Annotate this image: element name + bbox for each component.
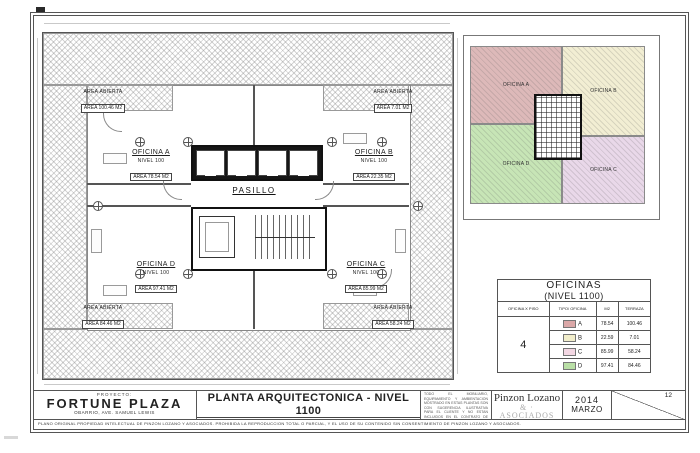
elevator-bank [191,145,323,181]
color-swatch-d [563,362,576,370]
terrace-band-left [43,85,87,329]
service-core [191,207,327,271]
floor-plan: PASILLO OFICINA A NIVEL 100 AREA 78.54 M… [36,18,460,388]
column-symbol [93,201,103,211]
office-b-label: OFICINA B NIVEL 100 AREA 22.35 M2 [343,149,405,184]
m2-cell: 85.99 [596,345,618,359]
service-elevator [199,216,235,258]
sheet-number-section: 12 [611,391,686,420]
elevator-car [227,150,256,176]
terrace-top-left-label: AREA ABIERTA AREA 100.46 M2 [53,89,153,115]
m2-cell: 22.59 [596,331,618,345]
date-month: MARZO [563,405,611,414]
office-type-cell: A [549,317,596,331]
table-row: 4 A 78.54 100.46 [498,317,651,331]
terrace-bottom-left-label: AREA ABIERTA AREA 84.46 M2 [53,305,153,331]
key-plan-zone-b-label: OFICINA B [590,88,617,94]
office-d-label: OFICINA D NIVEL 100 AREA 97.41 M2 [121,261,191,296]
notes-section: TODO EL MOBILIARIO, EQUIPAMIENTO Y AMBIE… [420,391,491,420]
office-type-cell: B [549,331,596,345]
key-plan-zone-d-label: OFICINA D [503,161,530,167]
terraza-cell: 7.01 [618,331,650,345]
office-c-label: OFICINA C NIVEL 100 AREA 85.99 M2 [331,261,401,296]
floor-number-cell: 4 [498,317,550,373]
column-symbol [413,201,423,211]
project-name: FORTUNE PLAZA [33,397,196,410]
key-plan: OFICINA A OFICINA B OFICINA D OFICINA C [463,35,660,220]
column-symbol [135,137,145,147]
terraza-cell: 84.46 [618,359,650,373]
terraza-cell: 100.46 [618,317,650,331]
terrace-top-right-label: AREA ABIERTA AREA 7.01 M2 [343,89,443,115]
firm-name-2: & · ASOCIADOS [492,404,562,420]
key-plan-zone-a-label: OFICINA A [503,82,529,88]
architect-firm-section: Pinzon Lozano & · ASOCIADOS ARQUITECTOS [491,391,562,420]
service-elevator-car [205,222,229,252]
date-section: 2014 MARZO [562,391,611,420]
areas-table: OFICINAS (NIVEL 1100) OFICINA X PISO TIP… [497,279,651,373]
terraza-cell: 58.24 [618,345,650,359]
color-swatch-a [563,320,576,328]
office-type-cell: C [549,345,596,359]
note-text: TODO EL MOBILIARIO, EQUIPAMIENTO Y AMBIE… [424,392,488,420]
corridor-label: PASILLO [218,186,290,195]
furniture [395,229,406,253]
key-plan-zone-c-label: OFICINA C [590,167,617,173]
wall-center-bottom [253,267,255,329]
header-tipo-oficina: TIPO/ OFICINA [549,302,596,317]
terrace-bottom-right-label: AREA ABIERTA AREA 58.24 M2 [343,305,443,331]
date-year: 2014 [563,395,611,405]
elevator-car [289,150,318,176]
elevator-car [258,150,287,176]
dimension-line-right [457,38,458,374]
furniture [91,229,102,253]
project-section: PROYECTO: FORTUNE PLAZA OBARRIO, AVE. SA… [33,391,196,420]
dimension-line-bottom [44,384,450,385]
building-outline: PASILLO OFICINA A NIVEL 100 AREA 78.54 M… [42,32,454,380]
key-plan-core [534,94,582,160]
office-a-label: OFICINA A NIVEL 100 AREA 78.54 M2 [116,149,186,184]
print-mark [4,436,18,439]
sheet-number: 12 [665,392,672,399]
stairs [255,215,315,259]
column-symbol [327,137,337,147]
dimension-line-left [37,38,38,374]
title-block: PROYECTO: FORTUNE PLAZA OBARRIO, AVE. SA… [33,390,686,420]
office-type-cell: D [549,359,596,373]
wall-corridor-right-bottom [323,205,409,207]
header-terraza: TERRAZA [618,302,650,317]
m2-cell: 78.54 [596,317,618,331]
copyright-disclaimer: PLANO ORIGINAL PROPIEDAD INTELECTUAL DE … [33,419,686,428]
dimension-line-top [44,23,450,24]
m2-cell: 97.41 [596,359,618,373]
terrace-band-bottom [43,329,453,379]
column-symbol [183,137,193,147]
drawing-title: PLANTA ARQUITECTONICA - NIVEL 1100 [197,391,420,418]
header-m2: M2 [596,302,618,317]
column-symbol [377,137,387,147]
drawing-title-section: PLANTA ARQUITECTONICA - NIVEL 1100 OFICI… [196,391,420,420]
header-oficina-x-piso: OFICINA X PISO [498,302,550,317]
color-swatch-c [563,348,576,356]
terrace-band-top [43,33,453,85]
areas-table-title: OFICINAS (NIVEL 1100) [498,280,651,302]
elevator-car [196,150,225,176]
wall-center-top [253,85,255,145]
color-swatch-b [563,334,576,342]
furniture [343,133,367,144]
